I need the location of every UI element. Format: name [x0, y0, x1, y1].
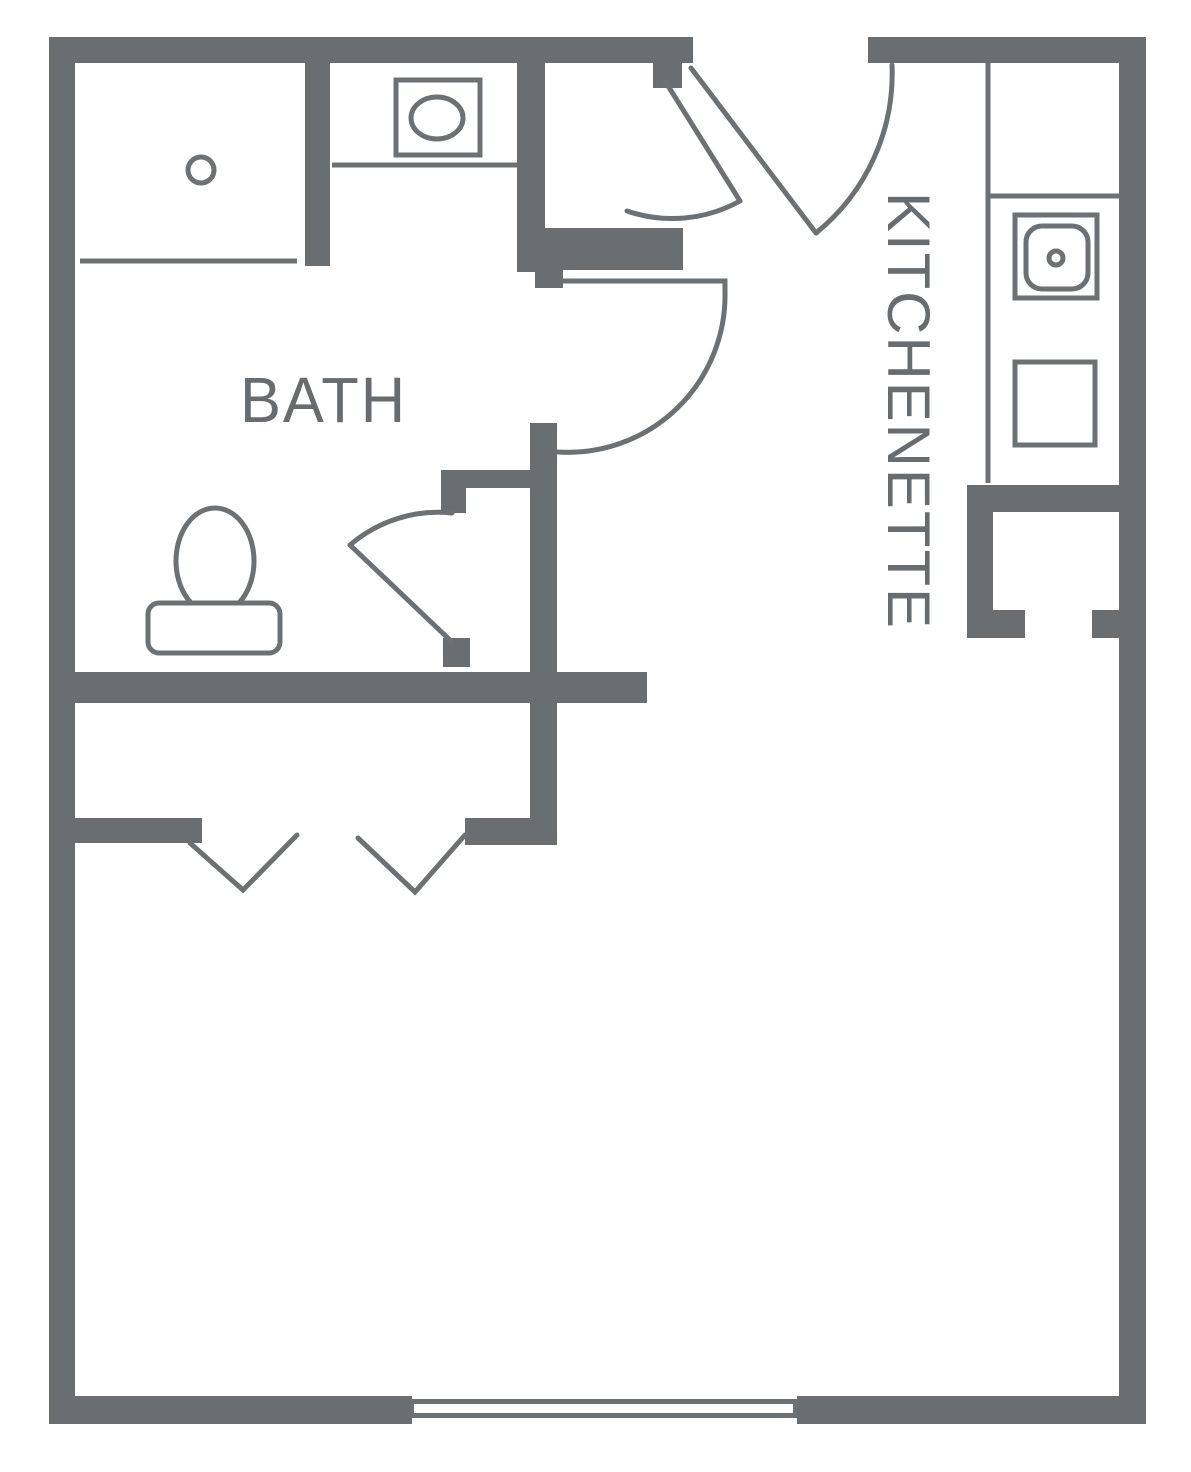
wall-top-right [868, 37, 1146, 63]
floor-plan: BATH KITCHENETTE [0, 0, 1191, 1472]
hall-closet-door-arc [627, 201, 740, 219]
window-left-cap [410, 1399, 414, 1418]
wall-inner-door-jamb-top [441, 470, 538, 488]
kitchen-sink-basin [1026, 226, 1088, 289]
window-right-cap [793, 1399, 797, 1418]
bath-door-leaf [563, 281, 725, 292]
wall-kitchen-closet-bottom-right [1092, 610, 1119, 638]
toilet-bowl-icon [176, 508, 254, 614]
wall-inner-door-jamb-step [441, 488, 466, 513]
wall-bath-bottom [49, 672, 647, 703]
wall-bath-door-jamb [535, 270, 563, 288]
shower-drain-icon [188, 157, 214, 183]
floor-plan-drawing: BATH KITCHENETTE [0, 0, 1191, 1472]
bath-inner-door-leaf [350, 545, 452, 642]
vanity-sink-basin [411, 97, 463, 139]
wall-inner-door-hinge-block [443, 638, 470, 667]
wall-kitchen-closet-bottom-left [967, 610, 1025, 638]
wardrobe-chevron-left-icon [190, 835, 297, 890]
kitchen-sink-drain [1049, 251, 1063, 265]
wall-wardrobe-front-left [49, 818, 202, 843]
stove-icon [1015, 362, 1095, 445]
hall-closet-door-leaf [665, 81, 740, 201]
wall-bottom-right [797, 1396, 1146, 1424]
kitchenette-label: KITCHENETTE [875, 192, 942, 630]
wall-shower-right [305, 37, 330, 266]
toilet-tank-icon [148, 603, 280, 653]
window-outer-line [410, 1399, 797, 1404]
window-inner-line [410, 1413, 797, 1418]
wall-closet-bottom [517, 228, 683, 270]
wall-left [49, 37, 75, 1424]
window-icon [410, 1399, 797, 1418]
wall-wardrobe-front-right [465, 818, 557, 845]
bath-inner-door-arc [350, 512, 452, 545]
bath-label: BATH [240, 364, 407, 436]
wardrobe-chevron-right-icon [358, 835, 465, 892]
wall-right [1119, 37, 1146, 1424]
wall-top-left [49, 37, 693, 63]
bath-door-arc [558, 292, 725, 452]
kitchenette-fixtures [988, 63, 1119, 483]
wall-bottom-left [49, 1396, 412, 1424]
